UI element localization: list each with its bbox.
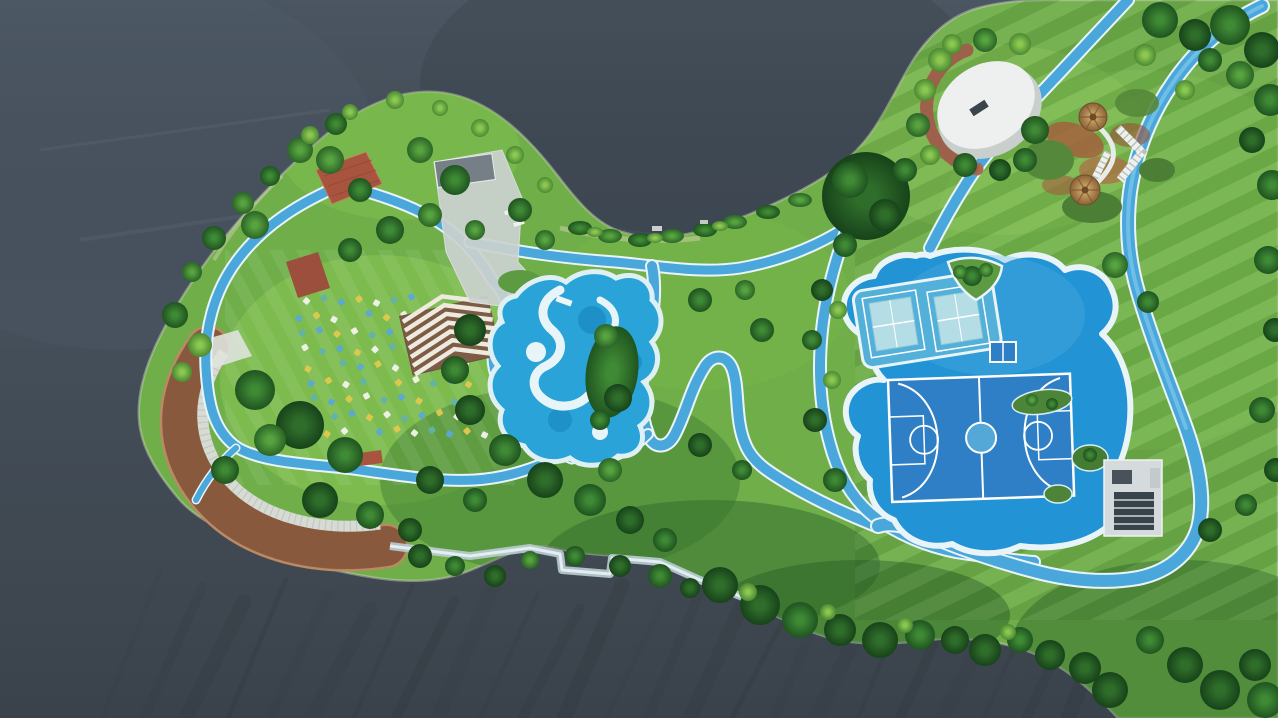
service-building xyxy=(1104,460,1162,536)
scene-canvas xyxy=(0,0,1278,718)
thatch-umbrella-2 xyxy=(1070,175,1100,205)
table-tennis-table xyxy=(990,342,1016,362)
sports-court-area xyxy=(844,250,1131,554)
thatch-umbrella-1 xyxy=(1079,103,1107,131)
small-dock-2 xyxy=(700,220,708,224)
small-dock xyxy=(652,226,662,231)
aerial-park-photo xyxy=(0,0,1278,718)
